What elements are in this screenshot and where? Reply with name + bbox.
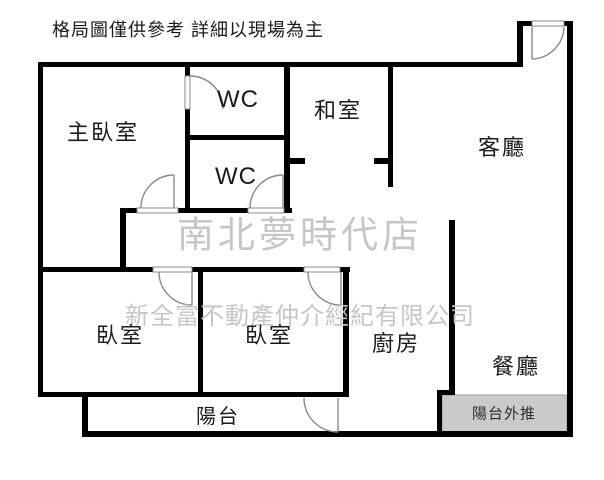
wall-balcony-left [82, 394, 88, 437]
wall-bedrooms-bottom [38, 392, 349, 397]
door-opening-bedroom-left [153, 267, 192, 272]
wall-entry-step [517, 21, 523, 67]
door-opening-entry [532, 21, 564, 26]
room-label-dining: 餐廳 [492, 356, 540, 378]
door-arc-master [141, 175, 174, 208]
wall-wc-left [185, 109, 190, 213]
wall-tatami-bottom-right [374, 158, 393, 164]
wall-right [567, 21, 573, 437]
wall-corridor-bottom-a [38, 267, 153, 272]
room-label-wc1: WC [217, 88, 259, 112]
wall-bottom [82, 431, 573, 437]
room-label-living: 客廳 [478, 137, 526, 159]
wall-alcove-right [120, 208, 126, 272]
watermark-store-name: 南北夢時代店 [177, 218, 423, 255]
room-label-balcony: 陽台 [196, 407, 240, 427]
door-arc-bedroom-right [308, 272, 341, 305]
room-label-kitchen: 廚房 [372, 333, 420, 355]
wall-wc-divider [185, 135, 290, 140]
wall-kitchen-step-v [437, 390, 442, 437]
room-label-balcony-extension: 陽台外推 [472, 407, 536, 422]
door-opening-master [137, 208, 178, 213]
room-label-tatami: 和室 [314, 100, 362, 122]
door-arc-balcony [304, 398, 338, 432]
wall-wc1-left-stub [185, 67, 190, 76]
wall-corridor-top-c [284, 208, 292, 213]
door-opening-wc1 [185, 76, 190, 109]
wall-bedroom-right-side [343, 267, 349, 397]
floor-plan: 格局圖僅供參考 詳細以現場為主 南北夢時代店 新全富不動產仲介經紀有限公司 主臥… [0, 0, 604, 480]
room-label-master-bedroom: 主臥室 [67, 122, 139, 144]
room-label-bedroom-left: 臥室 [96, 325, 144, 347]
wall-tatami-right [388, 62, 393, 187]
wall-left [38, 62, 43, 397]
wall-corridor-bottom-b [192, 267, 304, 272]
disclaimer-text: 格局圖僅供參考 詳細以現場為主 [52, 16, 324, 42]
wall-entry-left [517, 21, 532, 26]
wall-wc-right [284, 62, 290, 213]
wall-tatami-bottom-left [284, 158, 305, 164]
room-label-wc2: WC [215, 165, 257, 189]
wall-bedroom-divider [198, 272, 203, 392]
door-opening-bedroom-right [304, 267, 340, 272]
door-arc-bedroom-left [159, 272, 192, 305]
watermark-company-name: 新全富不動產仲介經紀有限公司 [125, 305, 475, 329]
wall-corridor-top-b [178, 208, 248, 213]
room-label-bedroom-right: 臥室 [245, 325, 293, 347]
door-opening-wc2 [248, 208, 284, 213]
wall-top [38, 62, 523, 67]
door-arc-entry [532, 27, 564, 59]
